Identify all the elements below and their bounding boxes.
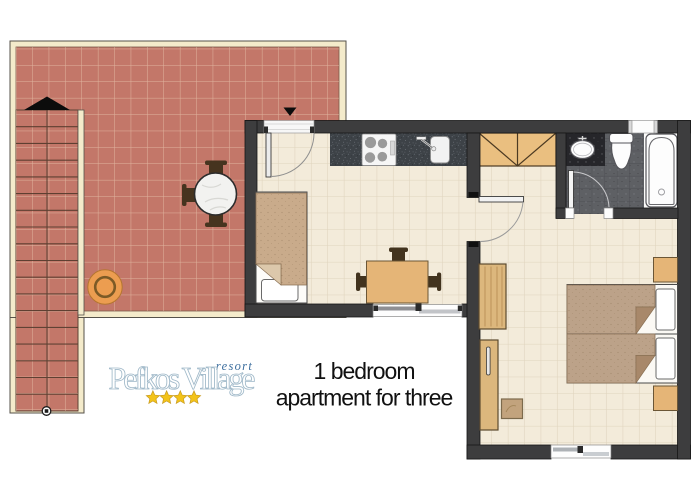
svg-text:apartment for three: apartment for three bbox=[276, 385, 453, 411]
svg-text:Pefkos Village: Pefkos Village bbox=[109, 360, 256, 396]
svg-text:1 bedroom: 1 bedroom bbox=[314, 358, 415, 384]
